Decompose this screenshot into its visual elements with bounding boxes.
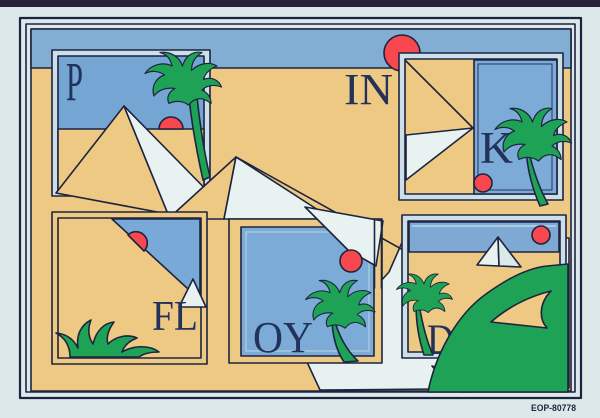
k-panel-sun [474,174,492,192]
letters-fl: FL [152,294,198,340]
desert-collage-illustration: IN P FL OY [0,0,600,418]
oy-panel-sun [340,250,362,272]
letter-p: P [66,51,83,112]
letters-oy: OY [253,313,313,362]
letters-in: IN [344,65,393,114]
oy-panel: OY [229,207,383,363]
photo-edge-strip [0,0,600,7]
k-panel: K [399,53,572,206]
poster-scan: IN P FL OY [0,0,600,418]
catalog-code: EOP-80778 [531,403,576,414]
fl-panel: FL [52,212,207,364]
d-panel-sun [532,226,550,244]
